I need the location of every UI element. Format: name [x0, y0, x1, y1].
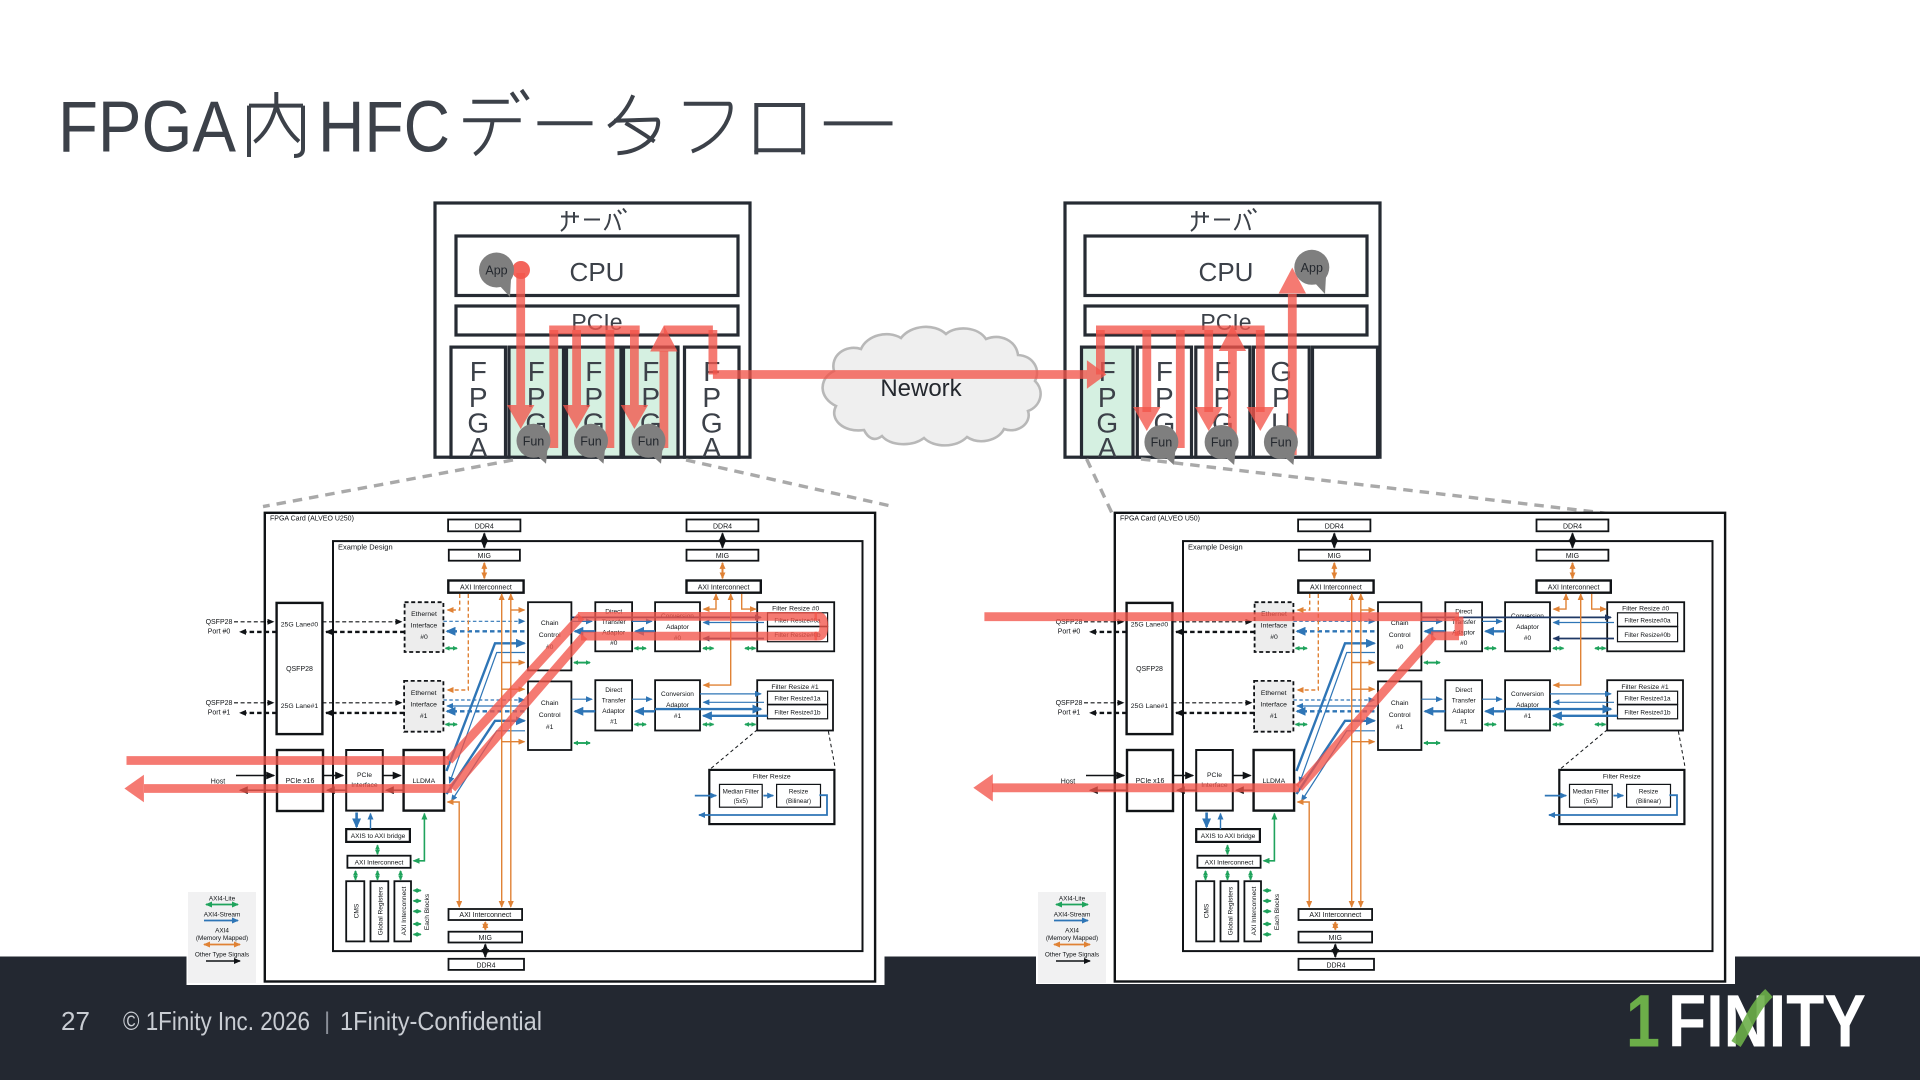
svg-text:25G Lane#1: 25G Lane#1	[281, 703, 319, 710]
svg-text:AXI Interconnect: AXI Interconnect	[698, 584, 750, 591]
svg-text:Adaptor: Adaptor	[602, 708, 626, 715]
svg-text:#1: #1	[546, 724, 554, 731]
svg-text:Nework: Nework	[880, 375, 962, 402]
svg-text:Direct: Direct	[605, 687, 622, 694]
svg-text:A: A	[702, 432, 721, 463]
svg-text:|: |	[324, 1008, 330, 1035]
svg-text:AXI Interconnect: AXI Interconnect	[460, 584, 512, 591]
svg-text:25G Lane#0: 25G Lane#0	[281, 622, 319, 629]
svg-text:(Bilinear): (Bilinear)	[786, 798, 811, 805]
svg-text:DDR4: DDR4	[713, 524, 732, 531]
svg-text:Port #0: Port #0	[208, 629, 231, 636]
svg-text:AXI Interconnect: AXI Interconnect	[459, 912, 511, 919]
svg-text:HFC: HFC	[318, 88, 450, 168]
svg-text:Each Blocks: Each Blocks	[424, 893, 431, 930]
svg-text:CMS: CMS	[354, 903, 361, 918]
svg-text:1Finity-Confidential: 1Finity-Confidential	[340, 1006, 542, 1036]
svg-text:#0: #0	[420, 634, 428, 641]
svg-text:A: A	[1098, 432, 1117, 463]
svg-text:QSFP28: QSFP28	[286, 666, 313, 673]
svg-text:AXI4-Stream: AXI4-Stream	[204, 912, 241, 919]
svg-text:Conversion: Conversion	[661, 691, 694, 698]
svg-text:PCIe x16: PCIe x16	[286, 778, 315, 785]
svg-text:Median Filter: Median Filter	[723, 789, 759, 796]
svg-text:Filter Resize: Filter Resize	[753, 774, 791, 781]
svg-text:App: App	[1301, 261, 1323, 275]
svg-text:Chain: Chain	[541, 620, 559, 627]
svg-text:DDR4: DDR4	[476, 963, 495, 970]
svg-text:© 1Finity Inc. 2026: © 1Finity Inc. 2026	[123, 1006, 310, 1036]
svg-text:FPGA: FPGA	[58, 88, 236, 168]
svg-text:#1: #1	[674, 713, 682, 720]
svg-text:Resize: Resize	[789, 789, 809, 796]
svg-text:Ethernet: Ethernet	[411, 690, 437, 697]
svg-text:AXI4-Lite: AXI4-Lite	[209, 896, 236, 903]
svg-text:Filter Resize#1a: Filter Resize#1a	[774, 696, 821, 703]
svg-text:A: A	[469, 432, 488, 463]
svg-text:Fun: Fun	[1151, 436, 1173, 450]
svg-text:Interface: Interface	[410, 702, 437, 709]
svg-text:MIG: MIG	[716, 553, 729, 560]
svg-text:FPGA Card (ALVEO U250): FPGA Card (ALVEO U250)	[270, 516, 354, 523]
svg-text:DDR4: DDR4	[475, 524, 494, 531]
svg-text:LLDMA: LLDMA	[412, 778, 435, 785]
svg-text:AXI Interconnect: AXI Interconnect	[401, 886, 408, 935]
svg-text:Filter Resize #1: Filter Resize #1	[771, 684, 818, 691]
svg-text:Transfer: Transfer	[602, 698, 627, 705]
svg-text:Adaptor: Adaptor	[666, 624, 690, 631]
svg-text:(Memory Mapped): (Memory Mapped)	[196, 935, 248, 942]
svg-text:Fun: Fun	[580, 434, 602, 448]
svg-text:Example Design: Example Design	[338, 543, 393, 552]
svg-text:Fun: Fun	[523, 434, 545, 448]
svg-text:Global Registers: Global Registers	[378, 886, 385, 935]
svg-text:(5x5): (5x5)	[734, 798, 748, 805]
svg-text:27: 27	[61, 1006, 90, 1036]
svg-text:FPGA Card (ALVEO U50): FPGA Card (ALVEO U50)	[1120, 516, 1200, 523]
svg-text:CPU: CPU	[570, 257, 625, 287]
svg-text:Filter Resize#1b: Filter Resize#1b	[774, 710, 821, 717]
svg-text:#0: #0	[610, 640, 618, 647]
svg-text:#1: #1	[420, 713, 428, 720]
svg-text:MIG: MIG	[479, 935, 492, 942]
svg-text:CPU: CPU	[1199, 257, 1254, 287]
svg-text:Interface: Interface	[411, 623, 438, 630]
svg-text:Chain: Chain	[541, 700, 559, 707]
svg-text:Fun: Fun	[1270, 436, 1292, 450]
svg-text:Port #1: Port #1	[208, 710, 231, 717]
svg-text:Fun: Fun	[638, 434, 660, 448]
svg-text:Ethernet: Ethernet	[411, 611, 437, 618]
svg-text:App: App	[485, 264, 507, 278]
svg-text:AXIS to AXI bridge: AXIS to AXI bridge	[351, 833, 406, 840]
svg-text:1: 1	[1626, 980, 1660, 1063]
svg-text:PCIe: PCIe	[357, 772, 372, 779]
svg-text:Control: Control	[539, 712, 561, 719]
svg-text:MIG: MIG	[478, 553, 491, 560]
svg-text:QSFP28: QSFP28	[206, 700, 233, 707]
svg-text:Other Type Signals: Other Type Signals	[195, 952, 249, 959]
svg-text:AXI Interconnect: AXI Interconnect	[355, 859, 404, 866]
svg-text:Filter Resize #0: Filter Resize #0	[772, 606, 819, 613]
svg-text:#1: #1	[610, 719, 618, 726]
svg-text:QSFP28: QSFP28	[206, 619, 233, 626]
svg-text:AXI4: AXI4	[215, 928, 229, 935]
svg-text:Fun: Fun	[1211, 436, 1233, 450]
